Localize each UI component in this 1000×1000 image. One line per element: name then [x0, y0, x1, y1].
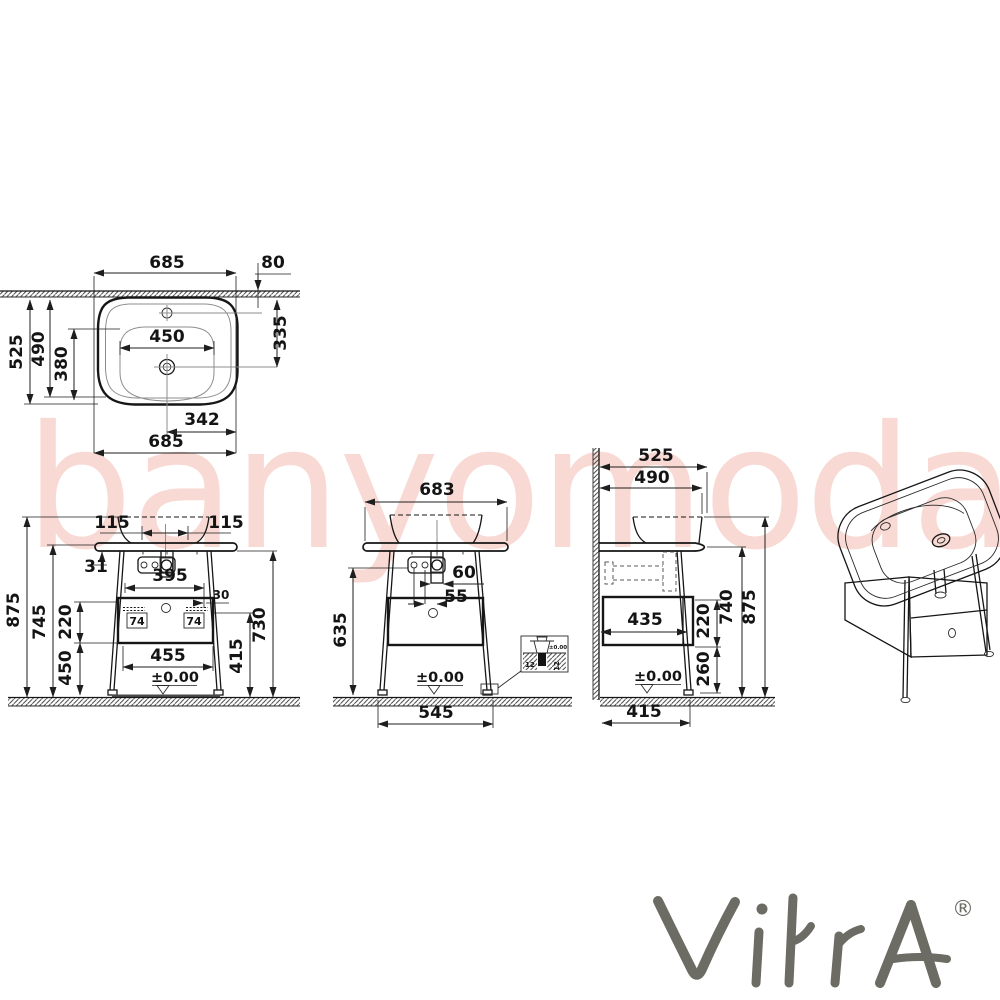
dim-220-side: 220 [694, 603, 714, 639]
technical-drawing: 685 80 525 490 380 450 335 [0, 0, 1000, 1000]
dim-115-left: 115 [94, 513, 130, 533]
dim-74-left: 74 [129, 615, 145, 628]
dim-380: 380 [52, 346, 72, 382]
dim-335: 335 [271, 315, 291, 351]
dim-683: 683 [419, 480, 455, 500]
datum-mid: ±0.00 [416, 670, 464, 686]
dim-450-front: 450 [56, 650, 76, 686]
datum-side: ±0.00 [634, 669, 682, 685]
dim-685-bottom: 685 [148, 432, 184, 452]
dim-415-front: 415 [227, 638, 247, 674]
dim-435: 435 [627, 610, 663, 630]
anchor-bolt [538, 653, 546, 666]
dim-260: 260 [694, 651, 714, 687]
wall-hatch [0, 291, 300, 297]
dim-525-side: 525 [638, 446, 674, 466]
dim-395: 395 [152, 566, 188, 586]
iso-basin [829, 461, 1000, 615]
top-view: 685 80 525 490 380 450 335 [0, 253, 300, 453]
dim-635: 635 [331, 612, 351, 648]
dim-545: 545 [418, 703, 454, 723]
vitra-logo: ® [658, 897, 974, 983]
dim-455: 455 [150, 646, 186, 666]
detail-12-right: 12 [553, 661, 561, 671]
dim-342: 342 [184, 410, 220, 430]
spec-sheet: banyomoda [0, 0, 1000, 1000]
dim-415-side: 415 [626, 702, 662, 722]
side-view: 525 490 875 740 [593, 446, 775, 727]
dim-74-right: 74 [186, 615, 202, 628]
detail-datum: ±0.00 [549, 645, 567, 651]
dim-31: 31 [84, 557, 108, 577]
front-view: 74 74 115 115 31 395 30 [4, 513, 300, 706]
iso-view [829, 461, 1000, 703]
dim-875-side: 875 [740, 589, 760, 625]
detail-12-left: 12 [525, 661, 535, 669]
foot-detail-callout: 12 12 ±0.00 [481, 636, 568, 694]
dim-745: 745 [30, 604, 50, 640]
hidden-trap [663, 552, 676, 591]
dim-875-front: 875 [4, 592, 24, 628]
logo-i-dot [757, 904, 768, 915]
dim-80: 80 [261, 253, 285, 273]
drawer-mid [388, 598, 483, 645]
mid-view: 683 [331, 480, 572, 728]
dim-525: 525 [7, 334, 27, 370]
dim-490-side: 490 [634, 468, 670, 488]
dim-685-top: 685 [149, 253, 185, 273]
dim-740: 740 [717, 589, 737, 625]
datum-triangle [157, 686, 169, 695]
knob-hole [162, 604, 171, 613]
registered-mark: ® [952, 897, 974, 922]
dim-450: 450 [149, 327, 185, 347]
dim-30: 30 [213, 588, 230, 602]
wall-hatch-side [593, 448, 599, 700]
ground-hatch [8, 698, 300, 706]
dim-730: 730 [250, 607, 270, 643]
iso-knob [949, 629, 956, 638]
dim-220-front: 220 [56, 604, 76, 640]
dim-115-right: 115 [208, 513, 244, 533]
dim-60: 60 [452, 563, 476, 583]
dim-490: 490 [29, 331, 49, 367]
datum-front: ±0.00 [151, 670, 199, 686]
